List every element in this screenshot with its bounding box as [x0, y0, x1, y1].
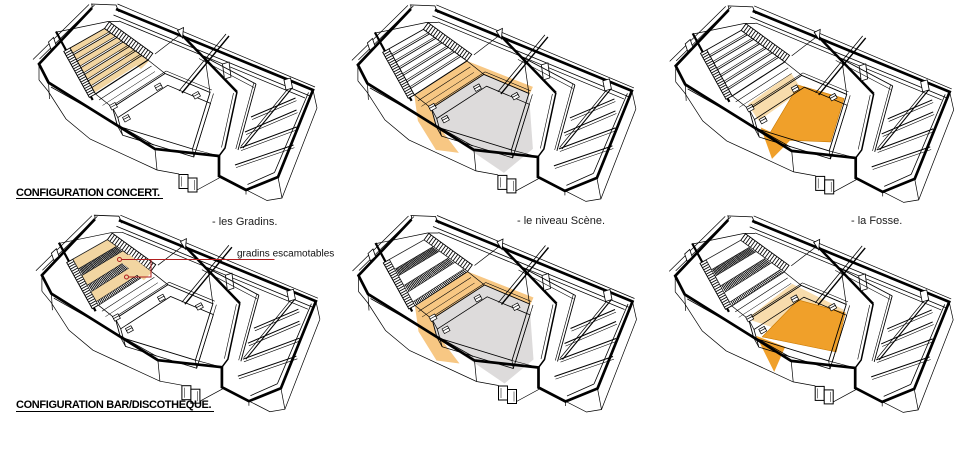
- svg-text:- la Fosse.: - la Fosse.: [851, 215, 902, 227]
- svg-text:CONFIGURATION BAR/DISCOTHEQUE.: CONFIGURATION BAR/DISCOTHEQUE.: [16, 399, 212, 411]
- svg-text:- les Gradins.: - les Gradins.: [212, 216, 277, 228]
- svg-text:- le niveau Scène.: - le niveau Scène.: [517, 215, 605, 227]
- svg-text:CONFIGURATION CONCERT.: CONFIGURATION CONCERT.: [16, 187, 160, 199]
- svg-text:gradins escamotables: gradins escamotables: [237, 249, 334, 260]
